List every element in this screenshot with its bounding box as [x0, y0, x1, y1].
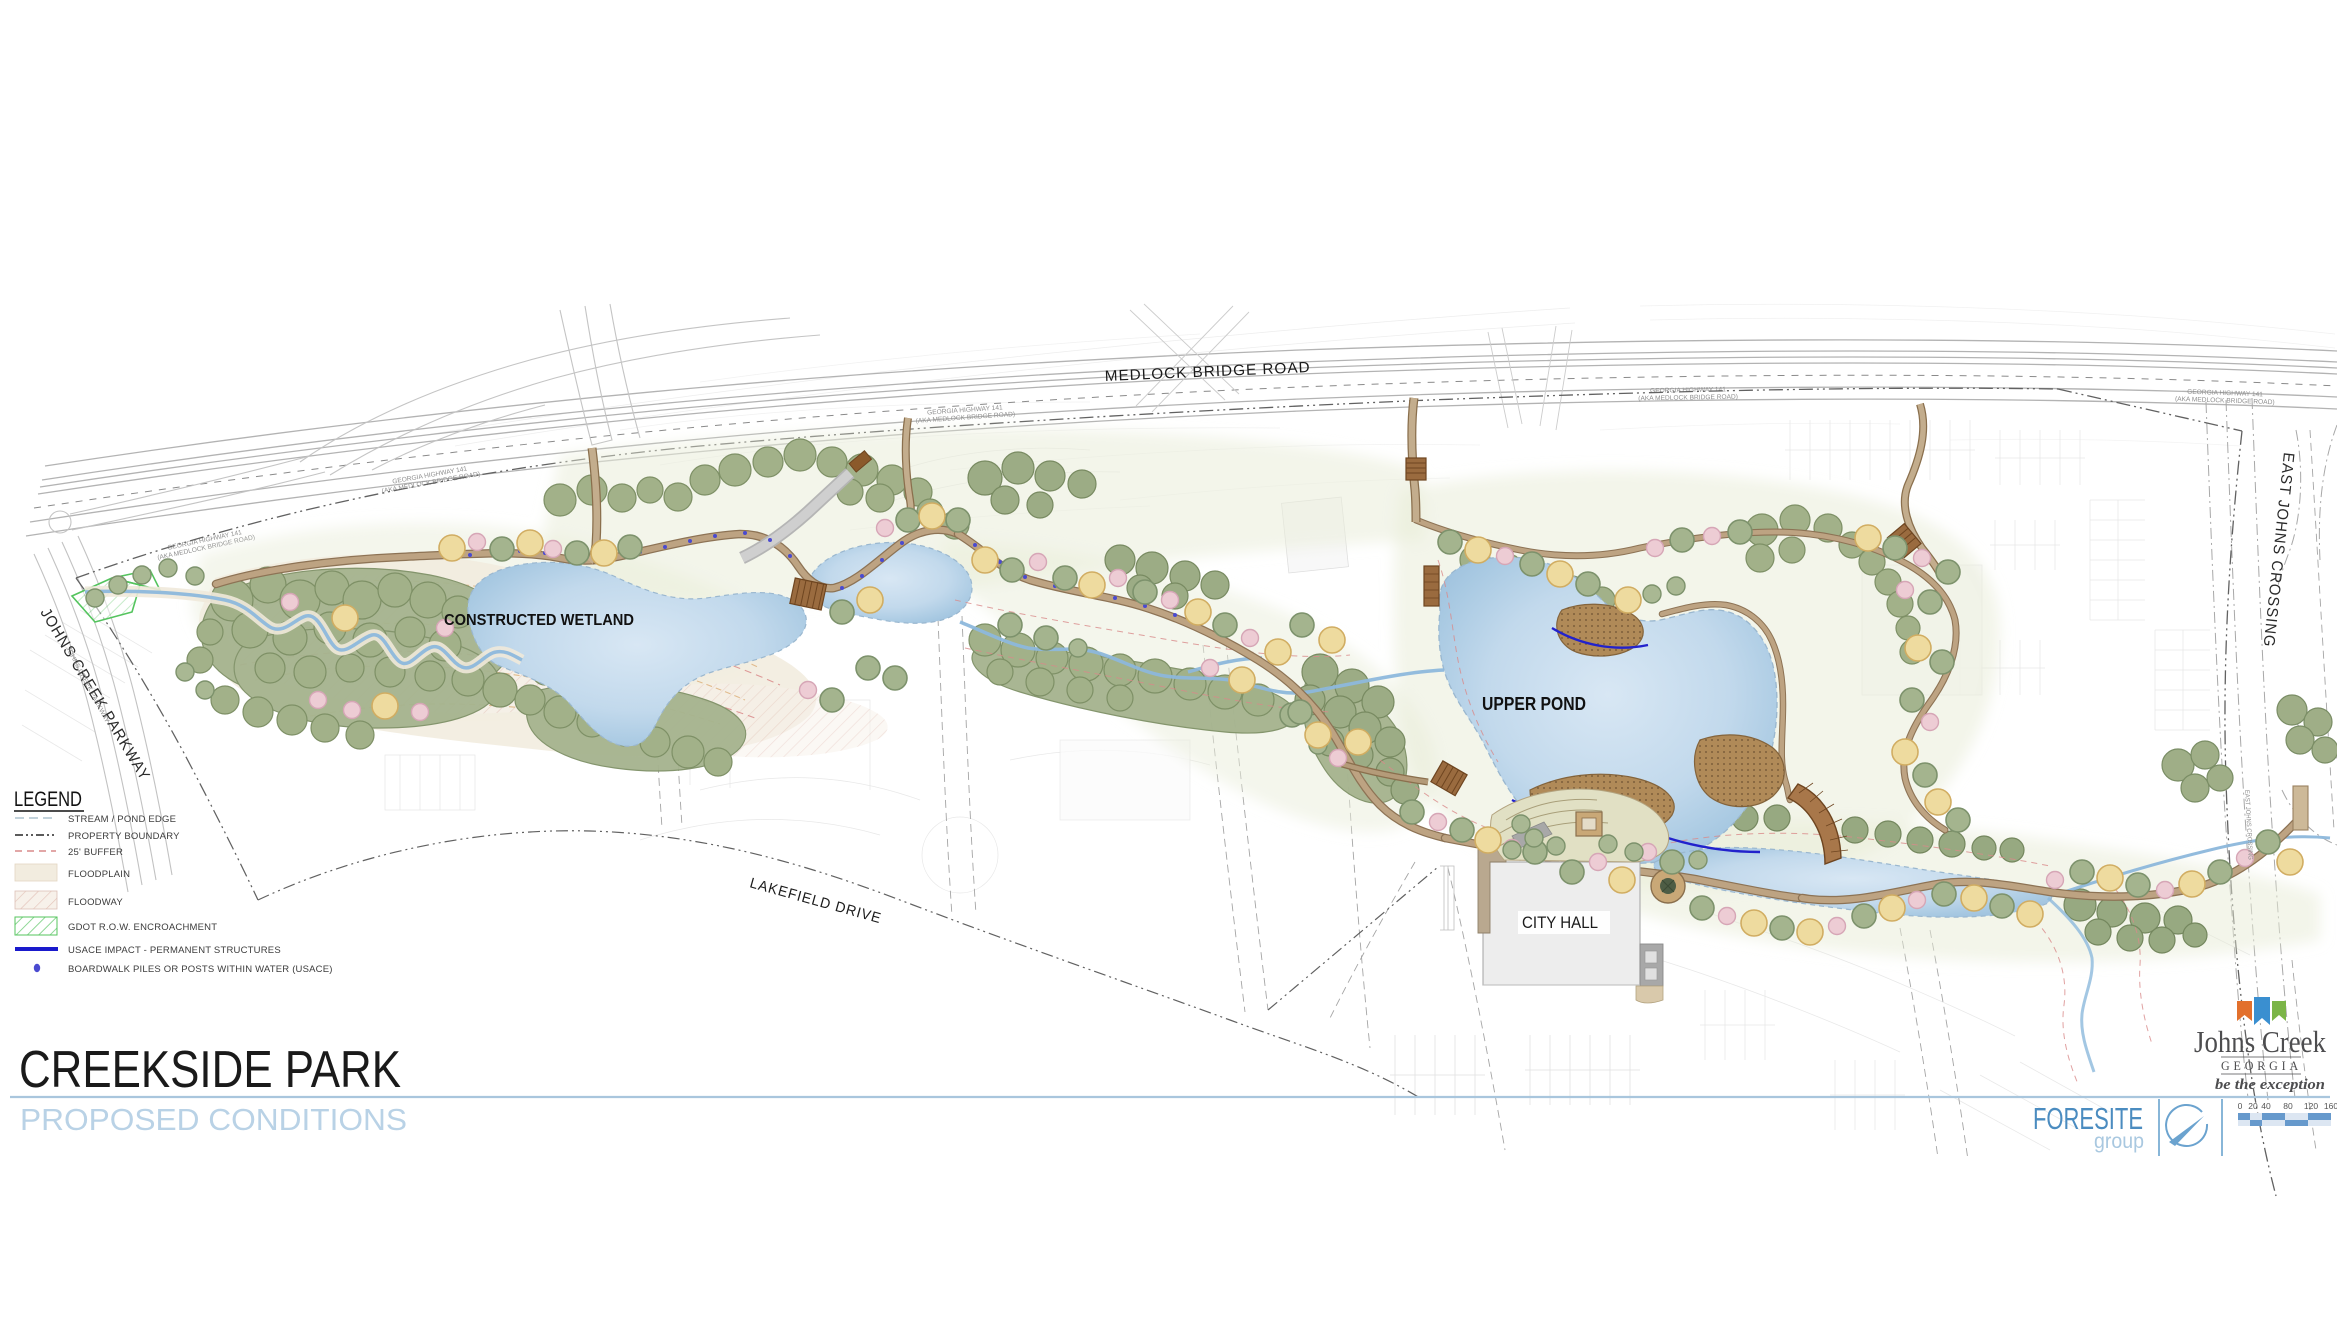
svg-text:LEGEND: LEGEND: [14, 788, 82, 811]
svg-text:Johns Creek: Johns Creek: [2194, 1024, 2326, 1059]
svg-text:FLOODWAY: FLOODWAY: [68, 897, 123, 908]
svg-text:BOARDWALK PILES OR POSTS WITHI: BOARDWALK PILES OR POSTS WITHIN WATER (U…: [68, 964, 333, 975]
svg-text:20: 20: [2248, 1101, 2258, 1111]
svg-text:be the exception: be the exception: [2215, 1077, 2325, 1093]
svg-text:120: 120: [2304, 1101, 2318, 1111]
svg-text:40: 40: [2261, 1101, 2271, 1111]
svg-text:0: 0: [2238, 1101, 2243, 1111]
svg-text:USACE IMPACT - PERMANENT STRUC: USACE IMPACT - PERMANENT STRUCTURES: [68, 945, 281, 956]
svg-text:PROPOSED CONDITIONS: PROPOSED CONDITIONS: [20, 1102, 407, 1137]
svg-text:FLOODPLAIN: FLOODPLAIN: [68, 869, 130, 880]
svg-text:CONSTRUCTED WETLAND: CONSTRUCTED WETLAND: [444, 612, 634, 629]
svg-text:CITY HALL: CITY HALL: [1522, 914, 1598, 932]
svg-text:GEORGIA: GEORGIA: [2221, 1059, 2302, 1073]
svg-text:25' BUFFER: 25' BUFFER: [68, 847, 123, 858]
svg-text:GDOT R.O.W. ENCROACHMENT: GDOT R.O.W. ENCROACHMENT: [68, 922, 217, 933]
svg-text:UPPER POND: UPPER POND: [1482, 694, 1586, 714]
svg-text:STREAM / POND EDGE: STREAM / POND EDGE: [68, 814, 176, 825]
svg-text:CREEKSIDE PARK: CREEKSIDE PARK: [19, 1041, 401, 1099]
svg-text:group: group: [2094, 1130, 2144, 1153]
svg-text:160: 160: [2324, 1101, 2337, 1111]
svg-text:PROPERTY BOUNDARY: PROPERTY BOUNDARY: [68, 831, 180, 842]
svg-text:80: 80: [2283, 1101, 2293, 1111]
